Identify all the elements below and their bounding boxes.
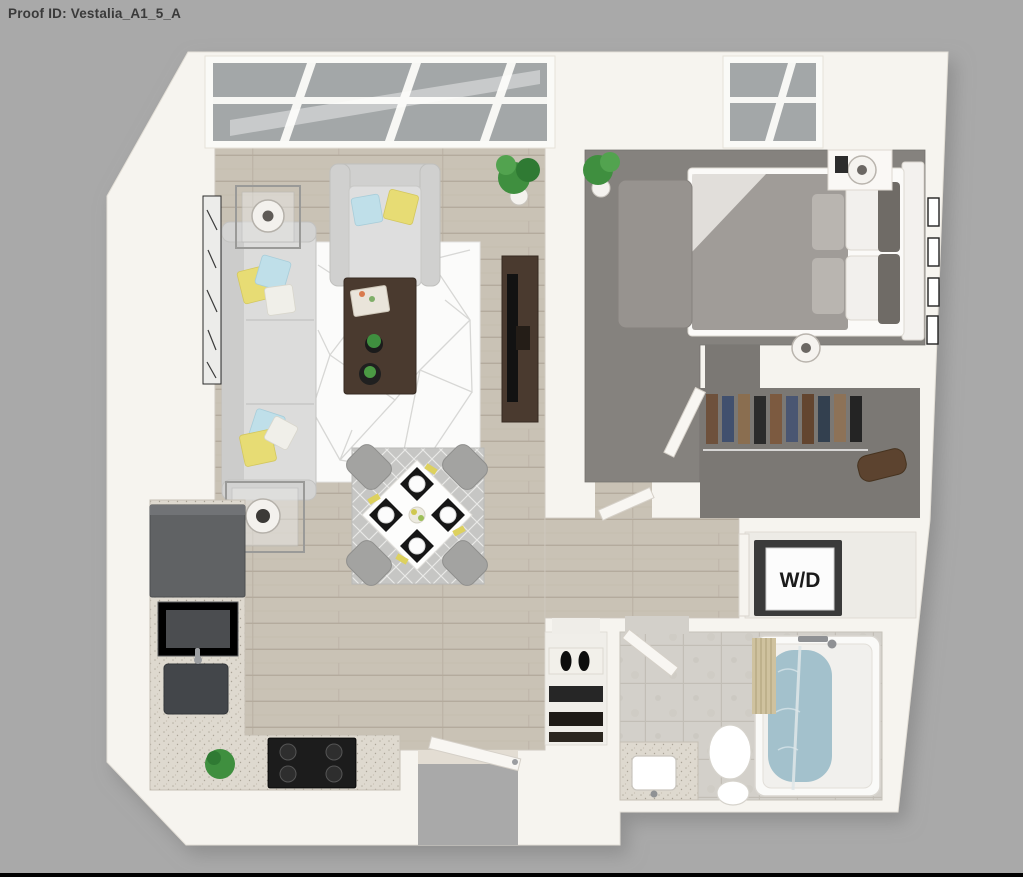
plate — [409, 476, 425, 492]
burner — [280, 766, 296, 782]
plant-leaves — [496, 155, 516, 175]
pillow-gray — [812, 194, 844, 250]
clothes-item — [786, 396, 798, 442]
hallway-floor — [545, 518, 739, 618]
closet-shelf-items — [549, 712, 603, 726]
wall-frame — [928, 278, 939, 306]
apartment-unit: W/D — [107, 52, 948, 845]
magazine-art — [359, 291, 365, 297]
burner — [280, 744, 296, 760]
burner — [326, 744, 342, 760]
magazine-art — [369, 296, 375, 302]
toilet-bowl — [709, 725, 751, 779]
oven-glass — [166, 610, 230, 648]
pillow-accent — [878, 254, 900, 324]
closet-shelf — [549, 648, 603, 674]
wd-label: W/D — [780, 569, 821, 592]
slipper — [579, 651, 590, 671]
kitchen-sink — [164, 664, 228, 714]
centerpiece — [409, 507, 425, 523]
stove-top — [268, 738, 356, 788]
pillow-accent — [878, 182, 900, 252]
nightstand — [828, 150, 892, 190]
floor-plan-screenshot: Proof ID: Vestalia_A1_5_A — [0, 0, 1023, 877]
clothes-item — [722, 396, 734, 442]
plant-leaves — [516, 158, 540, 182]
plate — [378, 507, 394, 523]
planter-leaves — [367, 334, 381, 348]
kitchen-faucet-neck — [195, 648, 200, 660]
sofa — [222, 222, 316, 500]
clothes-item — [834, 394, 846, 442]
wall-frame — [928, 198, 939, 226]
bedroom-closet-opening — [705, 345, 760, 391]
armchair-pillow-blue — [351, 194, 383, 226]
vanity — [620, 742, 698, 800]
bedroom-window — [723, 56, 823, 148]
plate — [409, 538, 425, 554]
stove — [268, 738, 356, 788]
lamp-finial — [801, 343, 811, 353]
dining-area — [343, 441, 491, 589]
shower-head — [828, 640, 837, 649]
decor-succulent — [364, 366, 376, 378]
coffee-table — [344, 278, 416, 394]
laundry-door — [739, 534, 749, 616]
vanity-faucet — [651, 791, 658, 798]
toilet-tank — [717, 781, 749, 805]
slipper — [561, 651, 572, 671]
foot-cushion — [618, 180, 692, 328]
lamp-finial — [263, 211, 274, 222]
wall-art-canvas — [203, 196, 221, 384]
sofa-back — [222, 230, 244, 492]
floor-plan-canvas: W/D — [0, 0, 1023, 877]
tv-mount — [516, 326, 530, 350]
bathroom-doorway — [625, 616, 689, 634]
photo-frame — [835, 156, 848, 173]
armchair — [330, 164, 440, 286]
clothes-item — [802, 394, 814, 444]
entry-door-knob — [512, 759, 518, 765]
wall-art — [203, 196, 221, 384]
armchair-arm-left — [330, 164, 350, 286]
lamp-finial — [857, 165, 867, 175]
refrigerator — [150, 505, 245, 597]
tv-console — [502, 256, 538, 422]
kitchen-plant-leaves — [207, 751, 221, 765]
bathtub — [752, 636, 880, 796]
sofa-pillow-white — [264, 284, 296, 316]
wall-frame — [927, 316, 938, 344]
vanity-sink — [632, 756, 676, 790]
clothes-item — [770, 394, 782, 444]
clothes-item — [850, 396, 862, 442]
living-window — [205, 56, 555, 148]
centerpiece-lemon — [411, 509, 417, 515]
closet-shelf-items — [549, 732, 603, 742]
side-table-top — [236, 186, 300, 248]
clothes-item — [738, 394, 750, 444]
centerpiece-lemon — [418, 515, 424, 521]
proof-id-label: Proof ID: Vestalia_A1_5_A — [8, 6, 181, 21]
window-mullion — [730, 97, 816, 103]
burner — [326, 766, 342, 782]
shower-arm — [798, 636, 828, 642]
lamp-finial — [256, 509, 270, 523]
clothes-item — [818, 396, 830, 442]
clothes-item — [706, 394, 718, 444]
laundry-closet: W/D — [739, 534, 842, 616]
plant-leaves — [600, 152, 620, 172]
wall-frame — [928, 238, 939, 266]
closet-shelf-items — [549, 686, 603, 702]
shoe-closet-opening — [552, 618, 600, 634]
plate — [440, 507, 456, 523]
armchair-arm-right — [420, 164, 440, 286]
refrigerator-top — [150, 505, 245, 515]
clothes-item — [754, 396, 766, 444]
headboard — [902, 162, 924, 340]
bottom-border — [0, 873, 1023, 877]
pillow-gray — [812, 258, 844, 314]
